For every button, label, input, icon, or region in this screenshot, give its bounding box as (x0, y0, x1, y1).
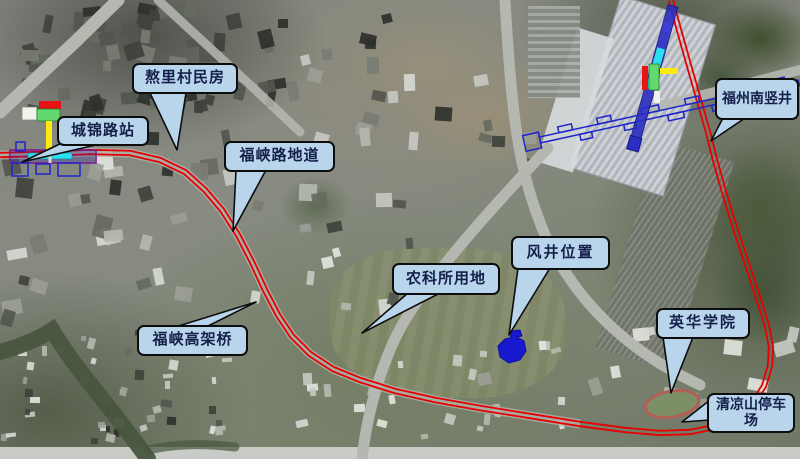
callout-qingliangshan-depot: 清凉山停车场 (707, 393, 795, 433)
vent-shaft-shape (498, 330, 526, 363)
icon-green-block (37, 109, 60, 121)
callout-aoli-village-houses: 熬里村民房 (132, 63, 238, 94)
tail-fuxia-road-underpass (233, 170, 266, 231)
icon-yellow-bar (46, 121, 52, 150)
satellite-map-figure: 城锦路站 熬里村民房 福峡路地道 福峡高架桥 农科所用地 风井位置 英华学院 清… (0, 0, 800, 459)
icon-white-block (22, 107, 37, 120)
tail-vent-shaft-location (509, 268, 550, 335)
callout-fuzhou-south-shaft: 福州南竖井 (715, 78, 799, 120)
icon-red-block (39, 101, 61, 109)
callout-yinghua-college: 英华学院 (656, 308, 750, 339)
chengjin-station-icon (22, 101, 61, 150)
callout-chengjin-road-station: 城锦路站 (57, 116, 149, 146)
callout-fuxia-viaduct: 福峡高架桥 (137, 325, 248, 356)
tail-aoli-village-houses (150, 93, 186, 150)
callout-agri-science-institute-land: 农科所用地 (392, 263, 500, 295)
callout-vent-shaft-location: 风井位置 (511, 236, 610, 270)
map-overlay (0, 0, 800, 459)
callout-fuxia-road-underpass: 福峡路地道 (224, 141, 335, 172)
